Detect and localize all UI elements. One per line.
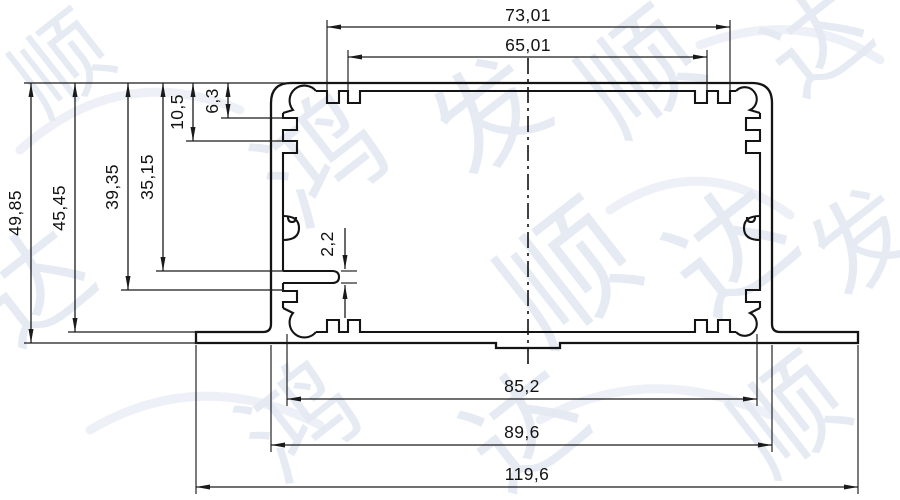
pcb-rail bbox=[283, 271, 339, 283]
watermark-char: 顺 bbox=[0, 0, 134, 138]
dimension-label: 89,6 bbox=[504, 422, 540, 442]
dimension-label: 10,5 bbox=[167, 94, 187, 130]
dimension-label: 2,2 bbox=[317, 231, 337, 257]
dimension-label: 65,01 bbox=[505, 35, 551, 55]
screw-boss-bottom-left bbox=[283, 308, 316, 337]
watermark-char: 鸿 bbox=[217, 337, 382, 500]
dimension-label: 49,85 bbox=[5, 190, 25, 236]
dimension-label: 45,45 bbox=[49, 185, 69, 231]
dimension-label: 119,6 bbox=[505, 464, 550, 484]
watermark-char: 达 bbox=[743, 0, 894, 119]
watermark-char: 鸿 bbox=[232, 69, 412, 252]
dimension-label: 73,01 bbox=[505, 5, 551, 25]
drawing-canvas: 顺 达 鸿 发 顺 达 顺 达 鸿 达 顺 发 bbox=[0, 0, 900, 500]
dimension-label: 85,2 bbox=[504, 376, 540, 396]
dimension-label: 39,35 bbox=[102, 164, 122, 210]
technical-drawing: 顺 达 鸿 发 顺 达 顺 达 鸿 达 顺 发 bbox=[0, 0, 900, 500]
screw-boss-top-right bbox=[736, 87, 760, 113]
dimension-label: 6,3 bbox=[202, 88, 222, 114]
watermark-char: 顺 bbox=[555, 0, 728, 162]
watermark-char: 顺 bbox=[471, 175, 667, 375]
watermark-char: 顺 bbox=[707, 332, 872, 500]
watermark-char: 发 bbox=[788, 165, 900, 319]
watermark: 顺 达 鸿 发 顺 达 顺 达 鸿 达 顺 发 bbox=[0, 0, 900, 500]
dimension-label: 35,15 bbox=[137, 154, 157, 200]
